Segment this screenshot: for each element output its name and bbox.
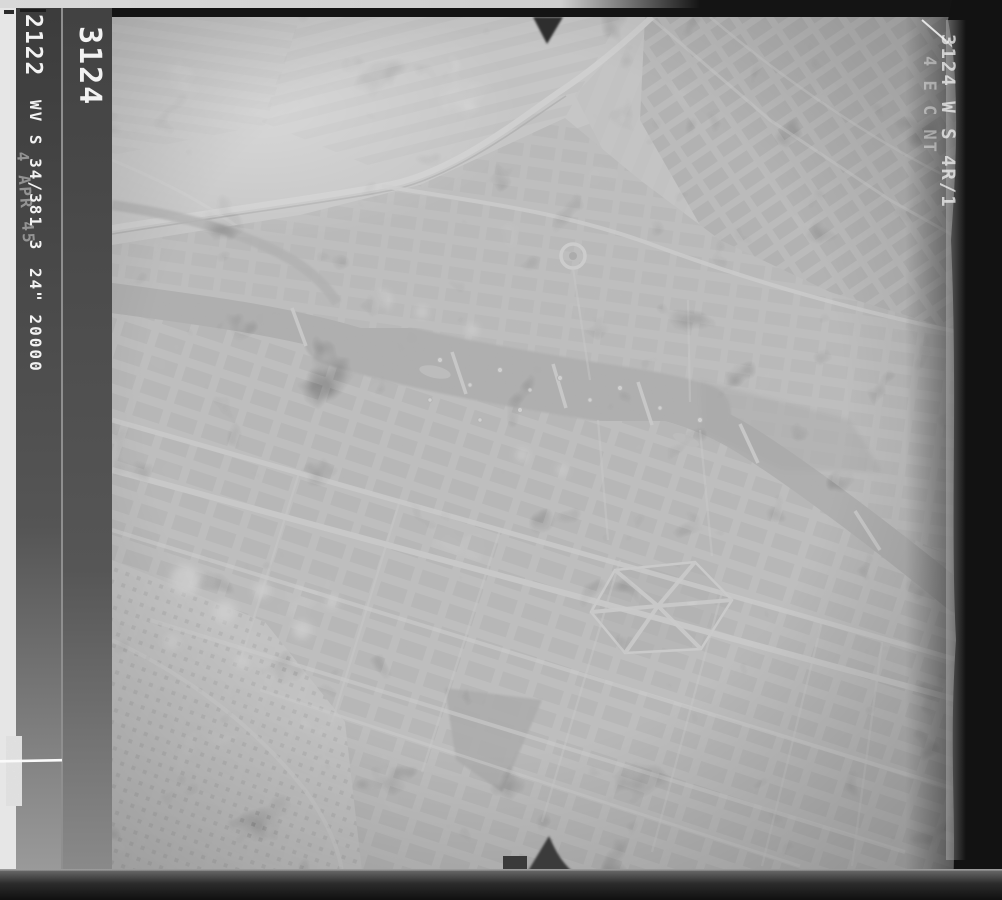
vignette — [112, 17, 960, 871]
fiducial-step-bottom — [503, 856, 527, 871]
film-number-annotation: 2122 — [20, 14, 46, 77]
film-strip-left-b — [63, 8, 112, 872]
film-edge-bottom-rim — [0, 869, 1002, 871]
photo-canvas: 3124 2122 WV S 34/381 3 4 APR 45 24" 200… — [0, 0, 1002, 900]
ghost-annotation-right: 4 E C NT — [919, 56, 939, 154]
film-strip-separator — [61, 8, 63, 872]
aerial-photo-frame: 3124 2122 WV S 34/381 3 4 APR 45 24" 200… — [0, 0, 1002, 900]
lens-scale-annotation: 24" 20000 — [26, 268, 45, 373]
frame-number-annotation: 3124 — [72, 26, 107, 106]
film-edge-bottom — [0, 870, 1002, 900]
frame-number-annotation-right: 3124 W S 4R/1 — [937, 34, 959, 209]
photo-content — [0, 0, 982, 871]
